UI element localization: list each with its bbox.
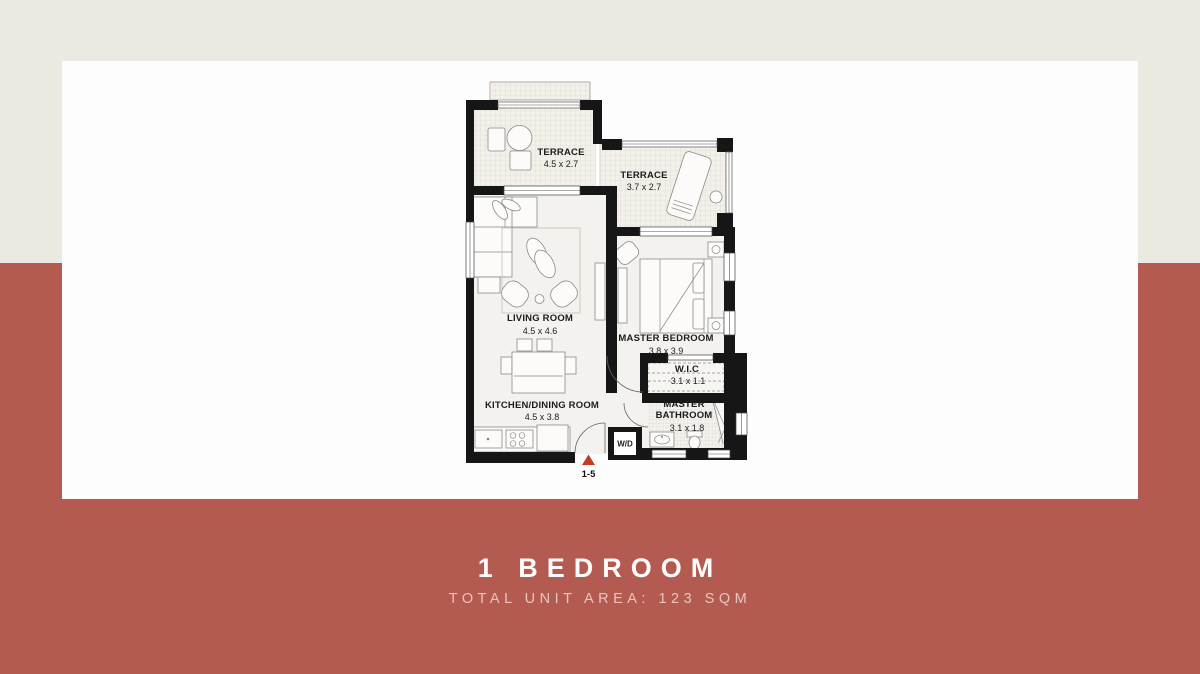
caption-block: 1 BEDROOM TOTAL UNIT AREA: 123 SQM [0, 552, 1200, 607]
side-table [535, 295, 544, 304]
bathroom-vanity [650, 432, 674, 447]
wic-dims: 3.1 x 1.1 [671, 376, 706, 386]
bedroom-dresser [618, 268, 627, 323]
nightstand-top [708, 242, 724, 257]
entry-marker-icon [582, 455, 595, 466]
master-bedroom-dims: 3.8 x 3.9 [649, 346, 684, 356]
nightstand-bottom [708, 318, 724, 333]
unit-title: 1 BEDROOM [0, 552, 1200, 584]
tv-console [595, 263, 605, 320]
terrace-side-table [710, 191, 722, 203]
floor-plan-panel: W/D TERRACE 4.5 x 2.7 TERRACE 3.7 x 2.7 … [62, 61, 1138, 499]
terrace-1-dims: 4.5 x 2.7 [544, 159, 579, 169]
kitchen-dining-dims: 4.5 x 3.8 [525, 412, 560, 422]
terrace-2-floor [600, 144, 728, 229]
utility-closet: W/D [608, 427, 642, 460]
wic-label: W.I.C [675, 364, 699, 375]
entry-label: 1-5 [582, 469, 596, 480]
terrace-2-label: TERRACE [620, 170, 667, 181]
terrace-1-label: TERRACE [537, 147, 584, 158]
unit-area-subtitle: TOTAL UNIT AREA: 123 SQM [0, 591, 1200, 607]
master-bathroom-label-line1: MASTER [663, 399, 704, 410]
utility-label: W/D [617, 440, 633, 449]
bed [640, 259, 712, 333]
living-room-label: LIVING ROOM [507, 313, 573, 324]
living-room-dims: 4.5 x 4.6 [523, 326, 558, 336]
master-bedroom-label: MASTER BEDROOM [618, 333, 713, 344]
master-bathroom-label-line2: BATHROOM [656, 410, 713, 421]
kitchen-counter [473, 425, 570, 452]
terrace-2-dims: 3.7 x 2.7 [627, 182, 662, 192]
kitchen-dining-label: KITCHEN/DINING ROOM [485, 400, 599, 411]
master-bathroom-dims: 3.1 x 1.8 [670, 423, 705, 433]
floor-plan-svg: W/D TERRACE 4.5 x 2.7 TERRACE 3.7 x 2.7 … [460, 80, 760, 480]
